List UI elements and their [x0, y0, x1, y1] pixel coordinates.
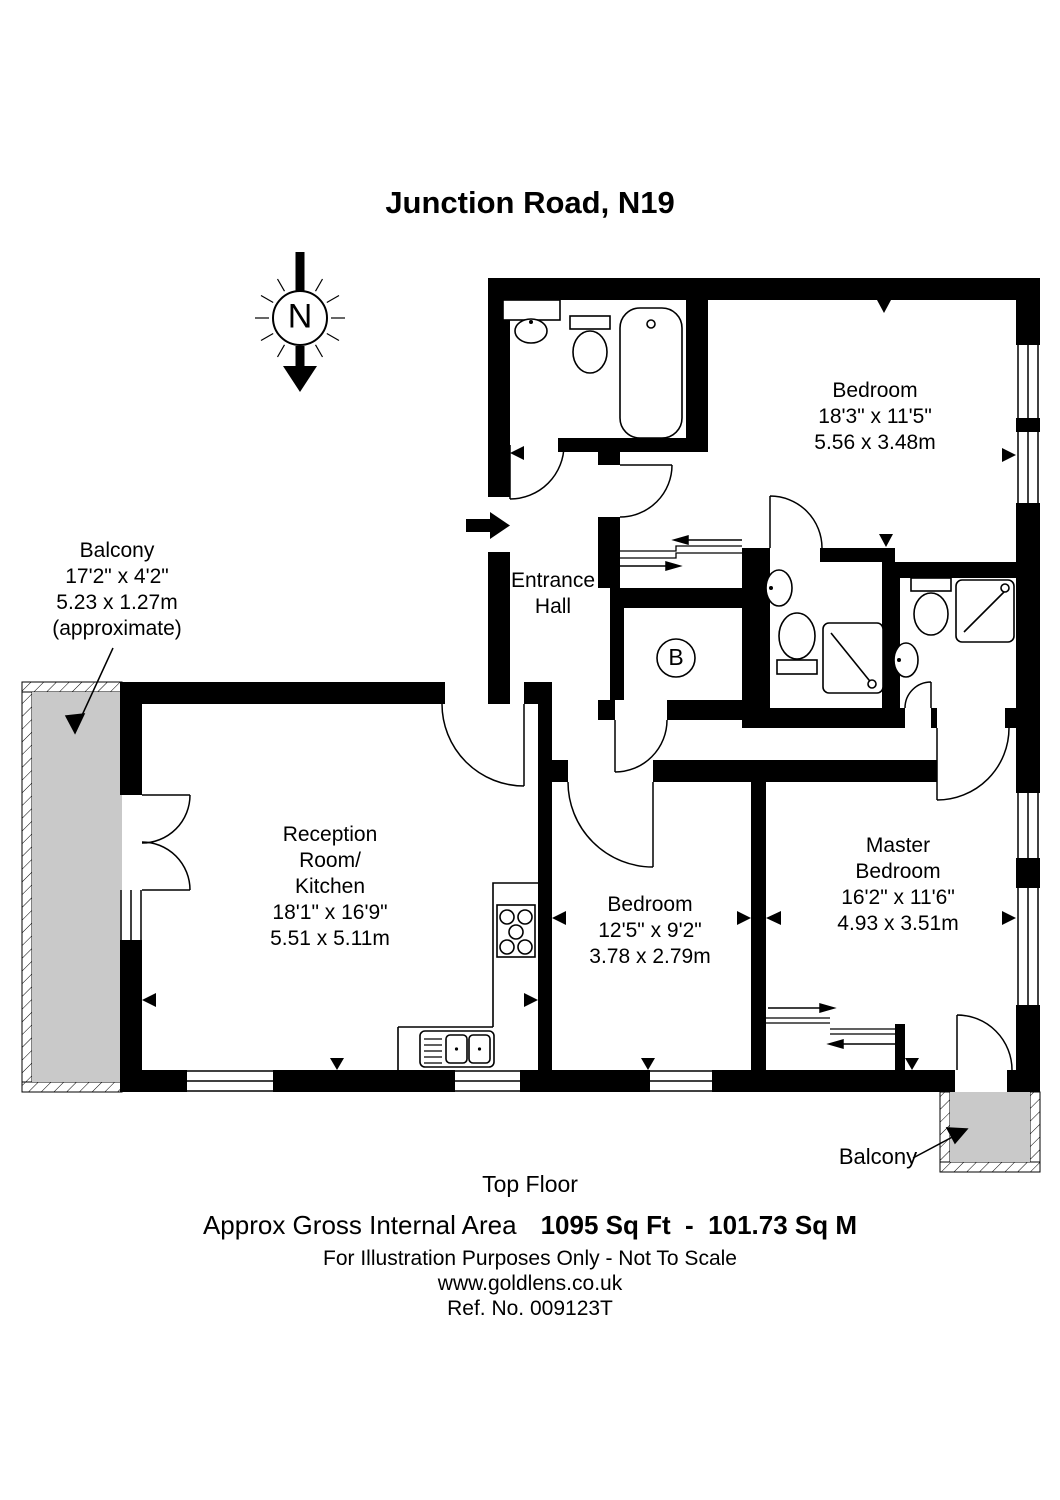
- floor-label: Top Floor: [0, 1171, 1060, 1198]
- area-label: Approx Gross Internal Area: [203, 1210, 517, 1240]
- balcony-left-shape: [22, 682, 122, 1092]
- area-line: Approx Gross Internal Area1095 Sq Ft - 1…: [0, 1210, 1060, 1241]
- area-value: 1095 Sq Ft - 101.73 Sq M: [541, 1210, 857, 1240]
- entrance-arrow-icon: [466, 512, 510, 539]
- room-label-master-bedroom: Master Bedroom 16'2" x 11'6" 4.93 x 3.51…: [837, 833, 958, 937]
- boiler-label: B: [668, 644, 683, 671]
- room-label-reception: Reception Room/ Kitchen 18'1" x 16'9" 5.…: [270, 822, 390, 952]
- disclaimer: For Illustration Purposes Only - Not To …: [0, 1247, 1060, 1271]
- room-label-bedroom-mid: Bedroom 12'5" x 9'2" 3.78 x 2.79m: [589, 892, 710, 970]
- room-label-bedroom-top: Bedroom 18'3" x 11'5" 5.56 x 3.48m: [814, 378, 935, 456]
- room-label-balcony-left: Balcony 17'2" x 4'2" 5.23 x 1.27m (appro…: [52, 538, 182, 642]
- kitchen-fixtures: [398, 883, 538, 1070]
- compass-north-label: N: [288, 298, 313, 337]
- reference-number: Ref. No. 009123T: [0, 1297, 1060, 1321]
- website: www.goldlens.co.uk: [0, 1272, 1060, 1296]
- room-label-balcony-bottom: Balcony: [839, 1144, 917, 1170]
- doors: [142, 445, 1012, 1070]
- room-label-entrance-hall: Entrance Hall: [511, 568, 595, 620]
- page-title: Junction Road, N19: [0, 185, 1060, 221]
